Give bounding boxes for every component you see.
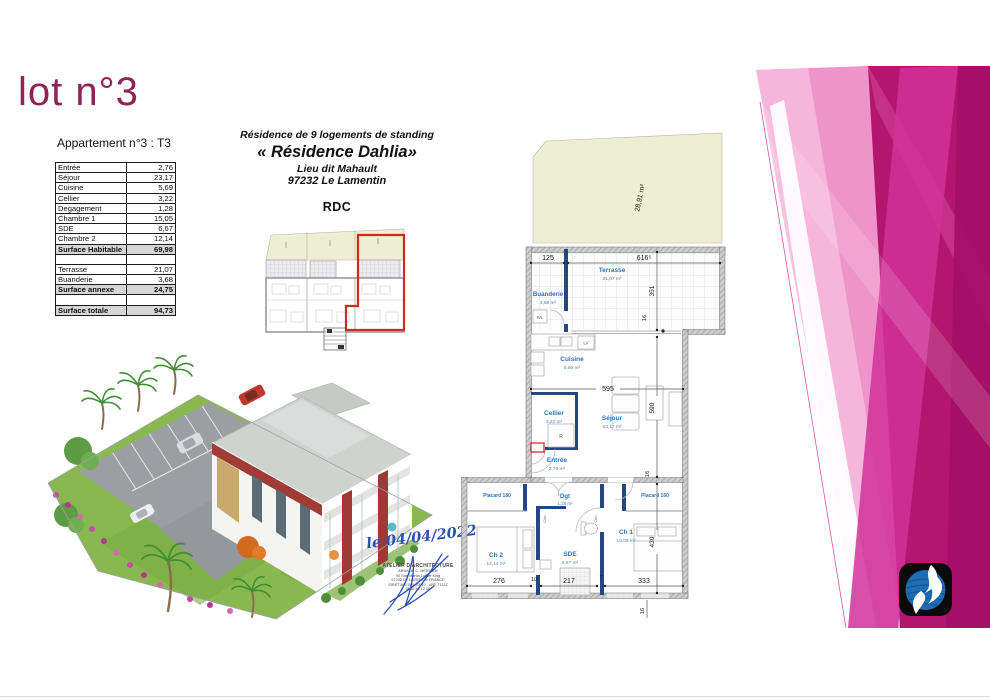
umbrella-teal: [388, 523, 397, 532]
room-sde: SDE: [563, 551, 577, 558]
company-logo: [897, 561, 954, 618]
svg-text:21,07 m²: 21,07 m²: [603, 276, 622, 282]
entry-door-marker: [531, 443, 544, 452]
furniture: [477, 310, 682, 595]
room-ch2: Ch 2: [489, 552, 503, 559]
svg-text:5,69 m²: 5,69 m²: [564, 365, 581, 371]
svg-text:595: 595: [602, 386, 614, 393]
clsn-label: Clsn: [543, 515, 547, 522]
pink-ribbon-graphic: [750, 66, 990, 628]
svg-text:125: 125: [542, 255, 554, 262]
key-plan: [258, 224, 412, 354]
svg-text:16: 16: [640, 608, 646, 614]
svg-text:616⁵: 616⁵: [637, 255, 652, 262]
table-row: Buanderie3,68: [56, 275, 176, 285]
placard-left-label: Placard 180: [483, 493, 511, 499]
svg-text:333: 333: [638, 578, 650, 585]
project-city: 97232 Le Lamentin: [228, 175, 446, 187]
svg-text:12,14 m²: 12,14 m²: [487, 561, 506, 567]
umbrella-orange: [329, 550, 339, 560]
table-row: Séjour23,17: [56, 173, 176, 183]
room-dgt: Dgt: [560, 494, 570, 500]
key-plan-gardens: [266, 229, 404, 260]
garden: 28,91 m²: [533, 133, 722, 243]
table-row: Entrée2,76: [56, 163, 176, 173]
table-row-spacer: [56, 254, 176, 264]
page-title: lot n°3: [18, 70, 139, 115]
svg-text:590: 590: [649, 402, 656, 413]
table-row: Chambre 115,05: [56, 213, 176, 223]
svg-text:3,22 m²: 3,22 m²: [546, 419, 563, 425]
table-row: Chambre 212,14: [56, 234, 176, 244]
svg-text:2,76 m²: 2,76 m²: [549, 466, 566, 472]
svg-text:16: 16: [642, 315, 648, 321]
project-header: Résidence de 9 logements de standing « R…: [228, 129, 446, 214]
svg-text:10: 10: [531, 577, 537, 583]
room-terrasse: Terrasse: [599, 267, 626, 274]
table-row: SDE6,67: [56, 224, 176, 234]
car-red: [238, 384, 267, 407]
svg-text:15,05 m²: 15,05 m²: [617, 538, 636, 544]
svg-text:16: 16: [645, 471, 651, 477]
svg-text:217: 217: [563, 578, 575, 585]
plan-sheet: { "title": "lot n°3", "apartment": { "he…: [0, 0, 990, 700]
room-entree: Entrée: [547, 457, 568, 464]
svg-text:7: 7: [599, 575, 602, 581]
surface-table: Entrée2,76 Séjour23,17 Cuisine5,69 Celli…: [55, 162, 176, 316]
svg-text:1,28 m²: 1,28 m²: [557, 501, 573, 506]
table-row: Degagement1,28: [56, 203, 176, 213]
table-row-spacer: [56, 295, 176, 305]
key-plan-body: [266, 278, 404, 332]
lv-label: LV: [583, 341, 588, 346]
apartment-heading: Appartement n°3 : T3: [40, 136, 188, 150]
page-bottom-border: [0, 696, 990, 697]
room-buanderie: Buanderie: [533, 291, 564, 298]
project-subtitle: Résidence de 9 logements de standing: [228, 129, 446, 141]
floor-plan: 28,91 m²: [452, 126, 738, 626]
project-name: « Résidence Dahlia»: [228, 143, 446, 162]
svg-text:6,67 m²: 6,67 m²: [562, 560, 579, 566]
r-label: R: [559, 434, 563, 440]
room-sejour: Séjour: [602, 415, 623, 422]
table-row: Terrasse21,07: [56, 264, 176, 274]
table-row-surface-totale: Surface totale94,73: [56, 305, 176, 315]
table-row-surface-annexe: Surface annexe24,75: [56, 285, 176, 295]
wl-label: WL: [537, 315, 544, 320]
table-row: Cuisine5,69: [56, 183, 176, 193]
table-row-surface-habitable: Surface Habitable69,98: [56, 244, 176, 254]
svg-text:3,68 m²: 3,68 m²: [540, 300, 557, 306]
room-ch1: Ch 1: [619, 529, 633, 536]
svg-text:430: 430: [649, 536, 656, 547]
room-cellier: Cellier: [544, 410, 564, 417]
placard-right-label: Placard 160: [641, 493, 669, 499]
clsn-label: Clsn: [594, 515, 598, 522]
svg-text:23,17 m²: 23,17 m²: [603, 424, 622, 430]
svg-text:351: 351: [649, 285, 656, 296]
room-cuisine: Cuisine: [560, 356, 584, 363]
svg-text:276: 276: [493, 578, 505, 585]
floor-label: RDC: [228, 200, 446, 214]
project-place: Lieu dit Mahault: [228, 163, 446, 175]
table-row: Cellier3,22: [56, 193, 176, 203]
